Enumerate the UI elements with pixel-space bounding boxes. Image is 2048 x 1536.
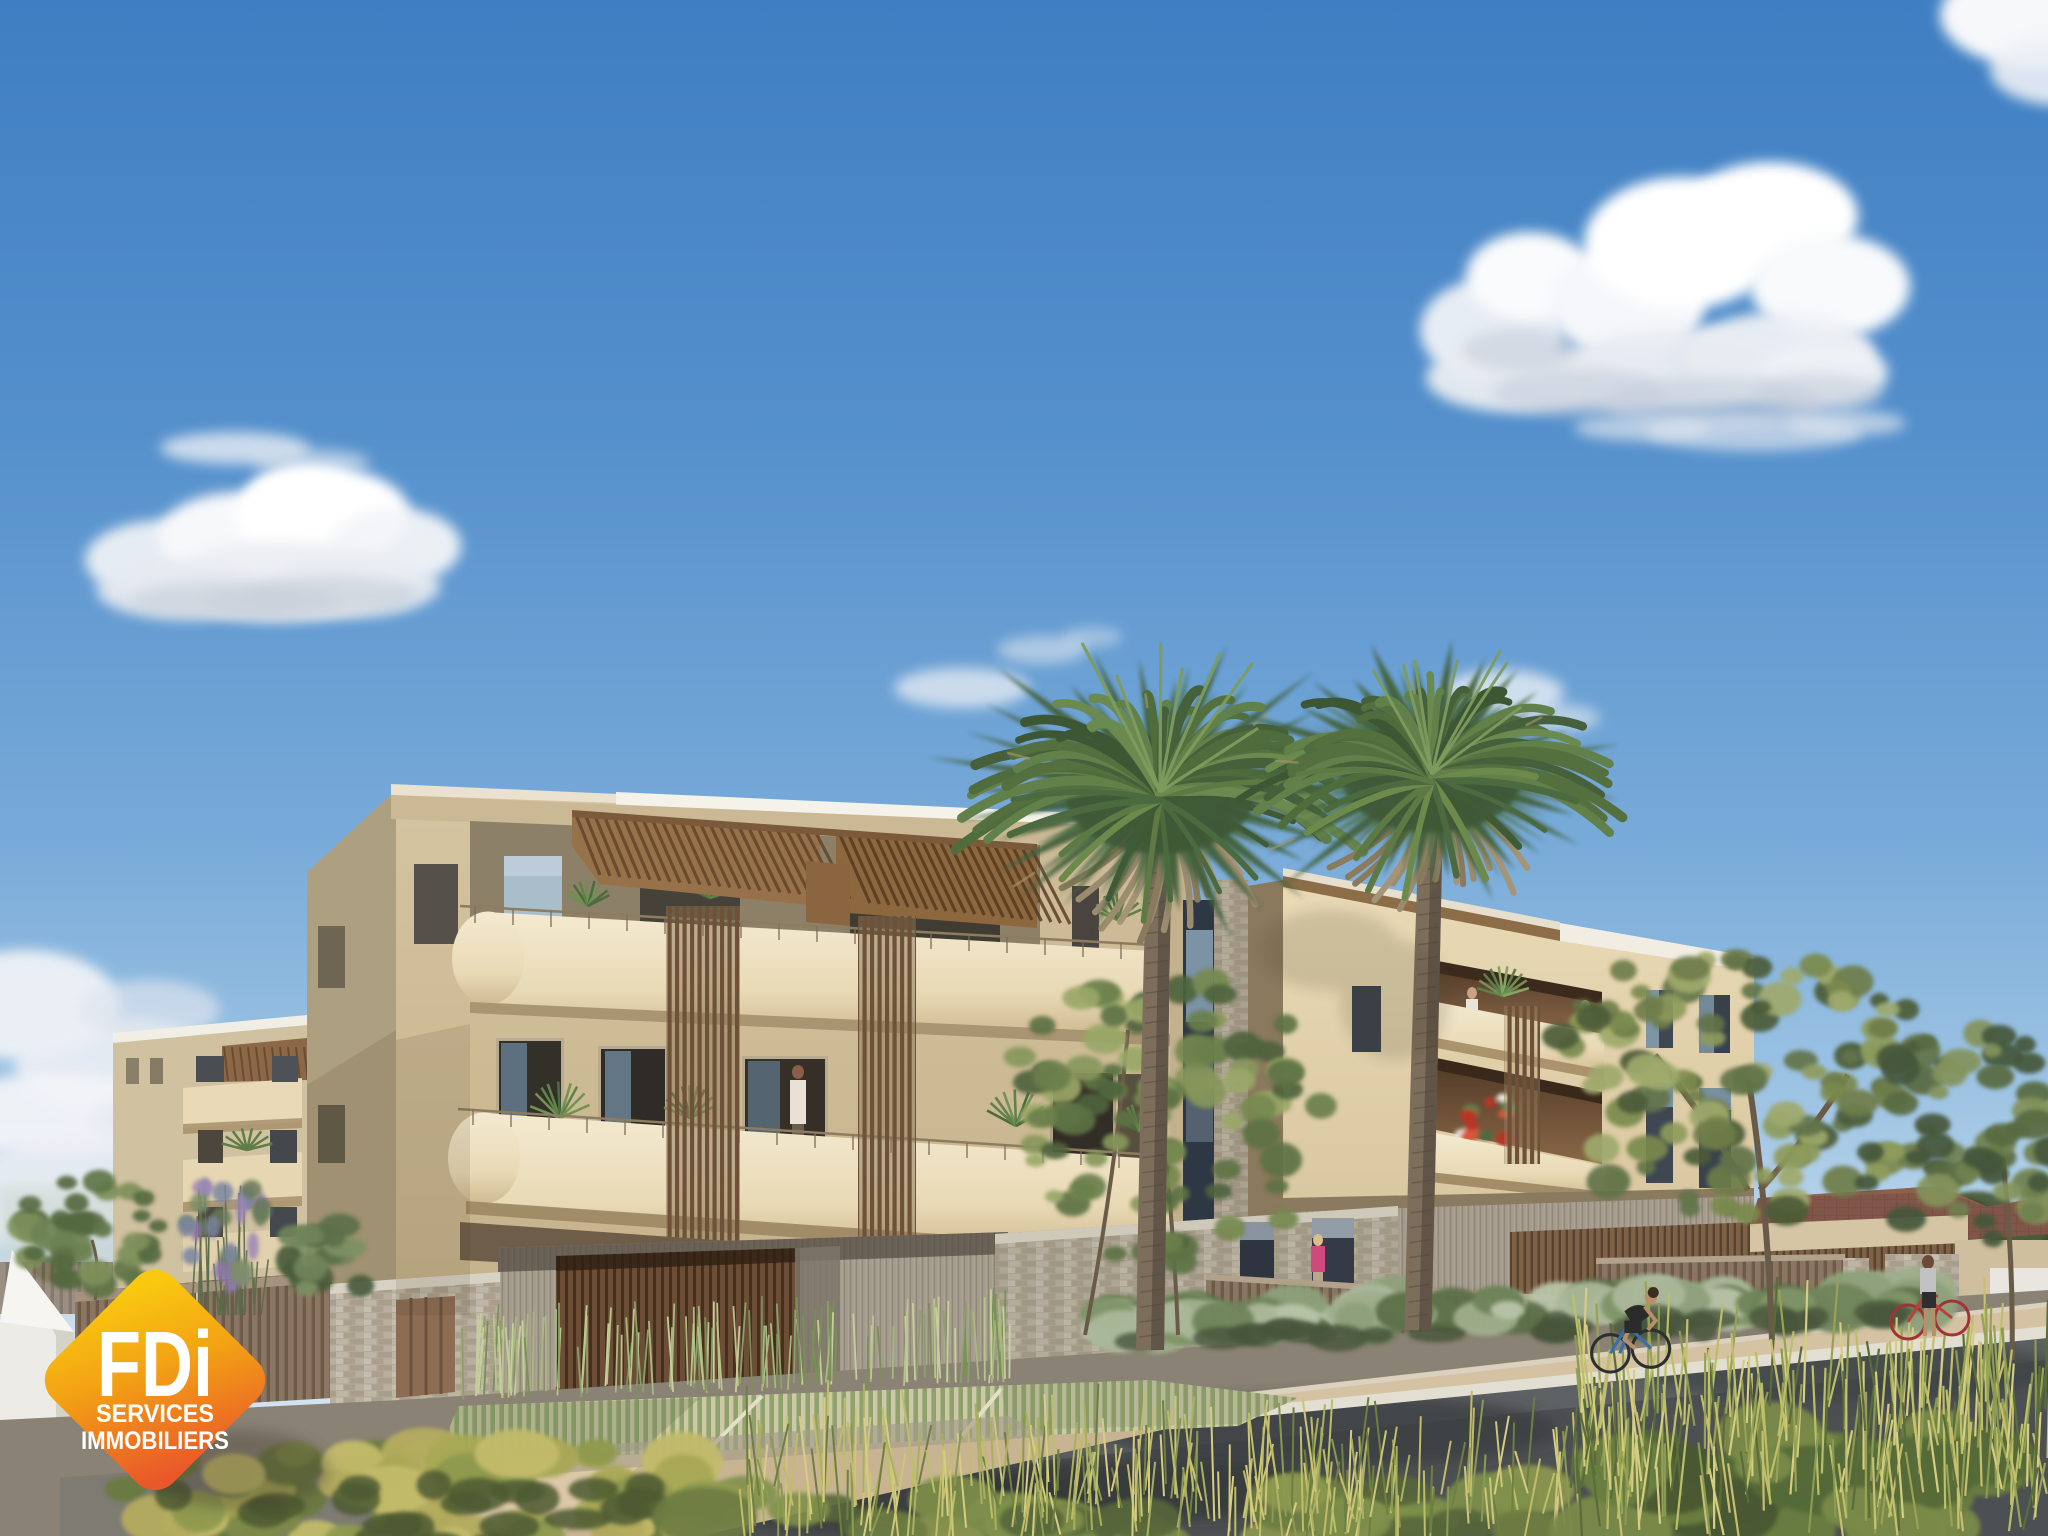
svg-text:IMMOBILIERS: IMMOBILIERS [81, 1427, 229, 1455]
svg-text:SERVICES: SERVICES [96, 1400, 214, 1428]
